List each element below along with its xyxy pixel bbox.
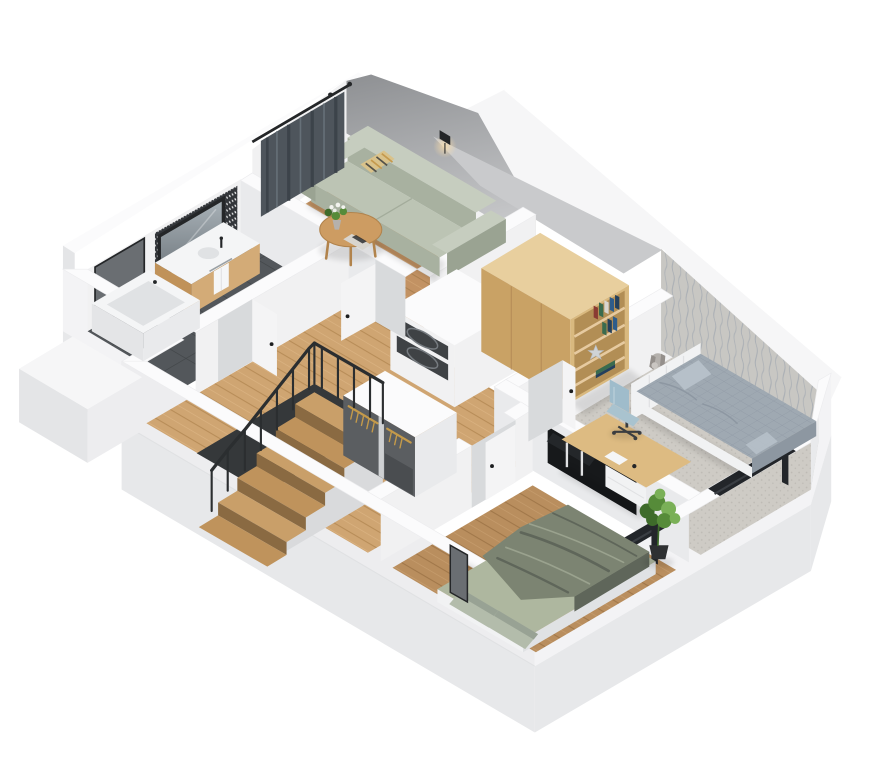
rod-finial — [347, 82, 352, 87]
dog-snout — [651, 362, 657, 368]
flower-bloom — [336, 203, 341, 208]
flower-leaves — [332, 211, 341, 220]
door-handle — [270, 342, 274, 346]
chair-wheel — [633, 436, 637, 440]
plant-leaf — [670, 513, 681, 524]
closet-divider — [379, 416, 384, 479]
flower-bloom — [333, 208, 337, 212]
chair-wheel — [638, 431, 642, 435]
book-spine — [599, 302, 603, 317]
book-spine — [594, 306, 598, 320]
sink-basin — [198, 247, 219, 259]
faucet-head — [220, 236, 223, 239]
door-handle — [490, 464, 494, 468]
book-spine — [604, 300, 608, 314]
plant-leaf — [655, 489, 666, 500]
rod-bracket — [328, 92, 333, 97]
building — [19, 72, 842, 732]
flower-bloom — [329, 205, 333, 209]
leaning-mirror — [450, 545, 467, 602]
floorplan-render: 3D isometric cutaway floor plan of an at… — [0, 0, 869, 768]
book-spine — [602, 322, 606, 336]
book-spine — [610, 297, 614, 312]
flower-bloom — [341, 205, 345, 209]
tub-faucet — [153, 280, 157, 284]
floorplan-canvas: 3D isometric cutaway floor plan of an at… — [0, 0, 869, 768]
book-spine — [608, 318, 612, 333]
door-handle — [346, 314, 350, 318]
chair-wheel — [612, 431, 616, 435]
plant-leaf — [657, 513, 672, 528]
book-spine — [615, 295, 619, 310]
door-panel — [563, 360, 576, 430]
door-handle — [569, 389, 573, 393]
plant-pot — [649, 545, 668, 559]
desk-object — [632, 464, 636, 468]
book-spine — [613, 316, 617, 331]
flower-leaves — [325, 209, 332, 216]
